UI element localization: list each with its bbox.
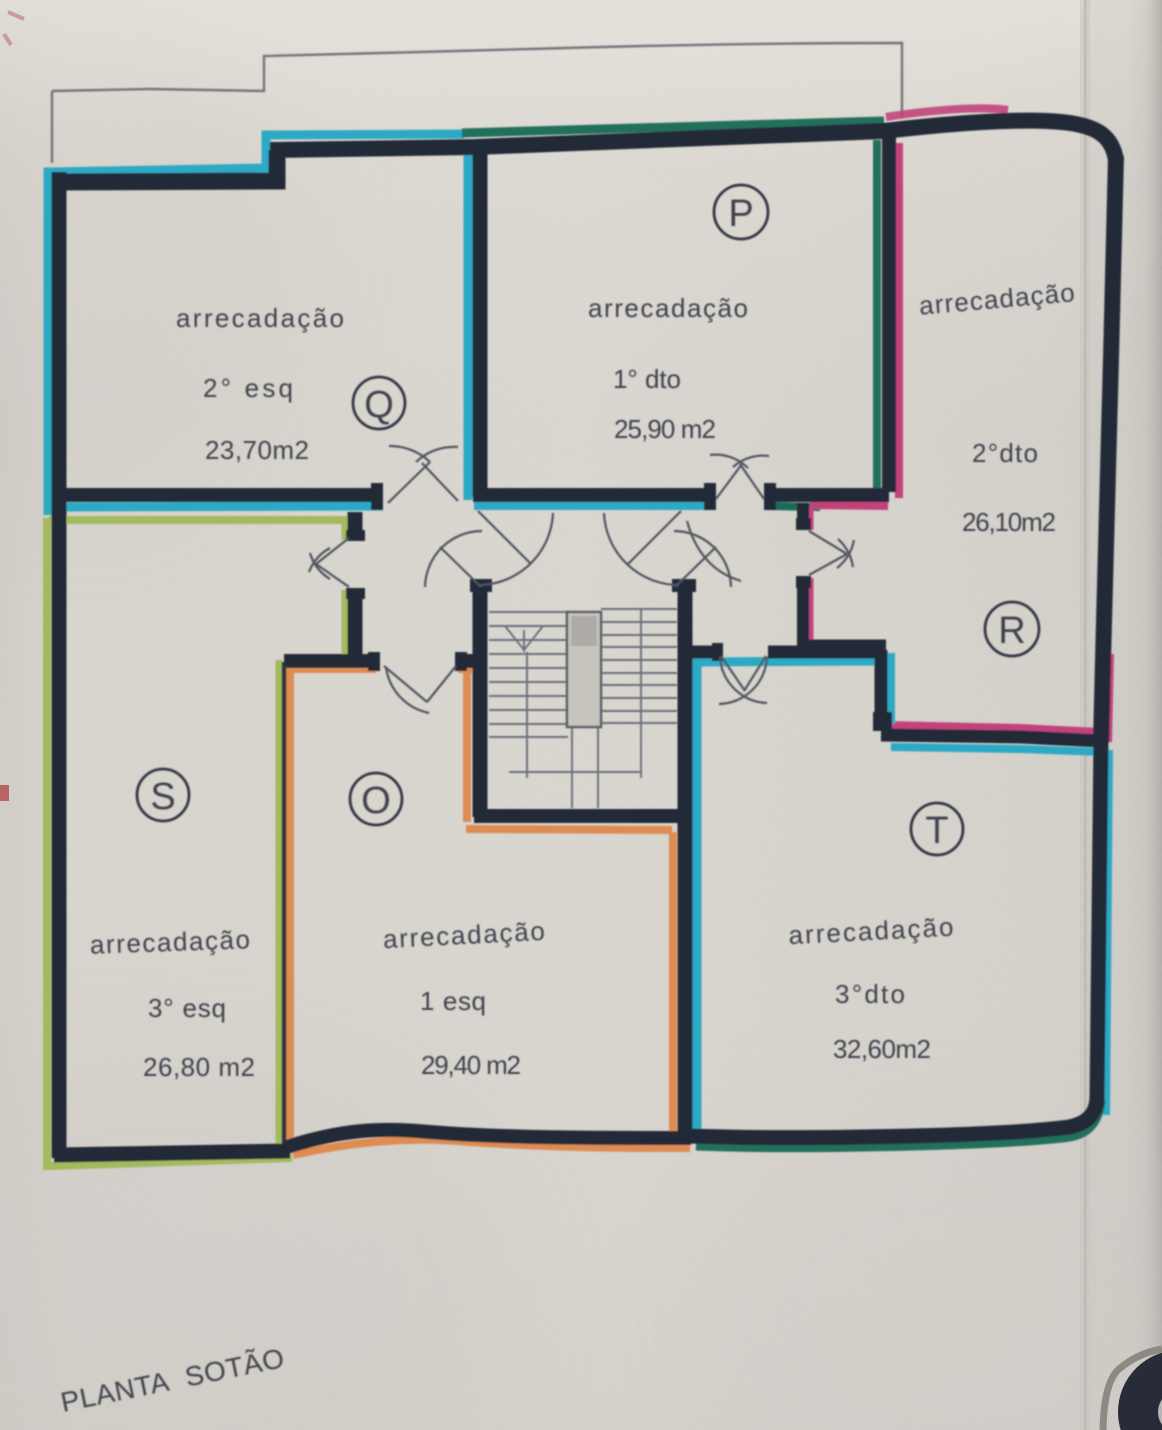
svg-text:O: O (361, 780, 391, 822)
svg-text:26,10m2: 26,10m2 (962, 507, 1056, 537)
svg-text:arrecadação: arrecadação (89, 924, 250, 960)
svg-text:26,80 m2: 26,80 m2 (143, 1052, 255, 1082)
svg-text:arrecadação: arrecadação (588, 293, 748, 323)
svg-text:T: T (925, 810, 948, 852)
svg-text:Q: Q (364, 384, 394, 426)
svg-text:R: R (998, 610, 1025, 652)
svg-text:25,90 m2: 25,90 m2 (614, 414, 716, 444)
svg-text:3° esq: 3° esq (148, 993, 226, 1023)
svg-text:arrecadação: arrecadação (176, 303, 344, 333)
svg-text:2°dto: 2°dto (972, 438, 1038, 468)
svg-text:P: P (728, 193, 753, 235)
svg-text:23,70m2: 23,70m2 (205, 435, 309, 465)
svg-text:S: S (150, 776, 175, 818)
svg-text:32,60m2: 32,60m2 (833, 1034, 931, 1064)
svg-text:3°dto: 3°dto (835, 979, 905, 1009)
svg-text:29,40 m2: 29,40 m2 (421, 1050, 521, 1080)
svg-text:2° esq: 2° esq (203, 373, 293, 403)
svg-text:1 esq: 1 esq (420, 986, 486, 1016)
svg-text:1° dto: 1° dto (613, 364, 681, 394)
